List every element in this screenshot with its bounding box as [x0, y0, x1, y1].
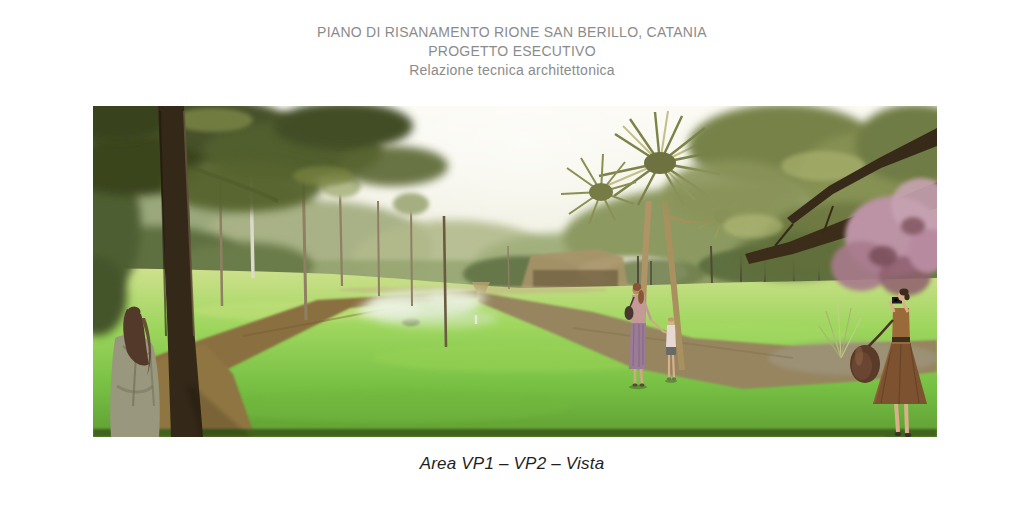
document-header: PIANO DI RISANAMENTO RIONE SAN BERILLO, … — [0, 23, 1024, 80]
header-title-line2: PROGETTO ESECUTIVO — [0, 42, 1024, 61]
document-page: PIANO DI RISANAMENTO RIONE SAN BERILLO, … — [0, 0, 1024, 518]
header-title-line1: PIANO DI RISANAMENTO RIONE SAN BERILLO, … — [0, 23, 1024, 42]
figure-caption: Area VP1 – VP2 – Vista — [0, 454, 1024, 474]
header-subtitle: Relazione tecnica architettonica — [0, 61, 1024, 80]
park-rendering-image — [93, 106, 937, 437]
render-figure: Area VP1 – VP2 – Vista — [93, 106, 937, 437]
